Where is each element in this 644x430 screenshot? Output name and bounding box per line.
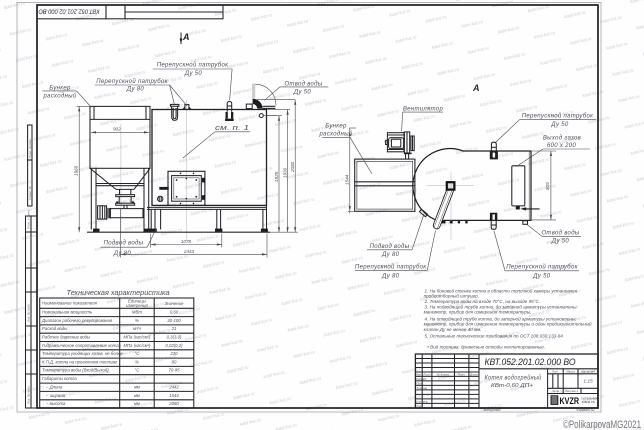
- svg-text:1078: 1078: [181, 239, 192, 244]
- svg-text:Отвод воды: Отвод воды: [284, 81, 322, 87]
- svg-text:Т.контр.: Т.контр.: [416, 386, 428, 390]
- svg-text:Перепускной патрубок: Перепускной патрубок: [522, 113, 594, 120]
- svg-text:%: %: [135, 359, 139, 364]
- svg-text:Котел водогрейный: Котел водогрейный: [485, 374, 542, 381]
- svg-text:Копировал: Копировал: [484, 408, 501, 412]
- svg-text:Отвод воды: Отвод воды: [541, 230, 579, 236]
- svg-text:1544: 1544: [169, 393, 179, 398]
- svg-text:0,60: 0,60: [170, 310, 179, 315]
- svg-text:%: %: [135, 318, 139, 323]
- svg-text:3. На подводящей трубе котла,: 3. На подводящей трубе котла, до запорно…: [425, 304, 579, 310]
- svg-text:– ширина: – ширина: [45, 393, 66, 398]
- svg-text:Ду 80: Ду 80: [113, 251, 131, 257]
- svg-text:Разраб.: Разраб.: [416, 377, 427, 381]
- svg-text:Техническая характеристика: Техническая характеристика: [67, 288, 170, 297]
- svg-text:0,02(0,2): 0,02(0,2): [165, 343, 183, 348]
- svg-text:пробоотборный штуцер.: пробоотборный штуцер.: [424, 293, 479, 299]
- svg-text:Лист: Лист: [422, 373, 431, 377]
- svg-text:2080: 2080: [290, 161, 295, 173]
- svg-text:Перепускной патрубок: Перепускной патрубок: [157, 62, 229, 69]
- svg-text:Листов 1: Листов 1: [564, 389, 578, 393]
- svg-text:К.П.Д. котла на проектном топл: К.П.Д. котла на проектном топливе: [42, 359, 118, 364]
- svg-text:расходный: расходный: [43, 92, 77, 99]
- svg-text:измерения: измерения: [126, 303, 148, 308]
- svg-text:А: А: [182, 32, 190, 42]
- svg-text:– высота: – высота: [45, 401, 66, 406]
- svg-text:– Длина: – Длина: [45, 384, 63, 389]
- svg-text:ЗАВОД Р.В.: ЗАВОД Р.В.: [582, 400, 596, 404]
- svg-text:см. п. 1: см. п. 1: [215, 125, 249, 132]
- svg-text:1. На боковой стенке котла в о: 1. На боковой стенке котла в области топ…: [425, 288, 578, 294]
- svg-text:Инв. № дубл.: Инв. № дубл.: [26, 303, 30, 322]
- svg-text:• Вид топлива: древесные отход: • Вид топлива: древесные отходы пеллетир…: [427, 345, 545, 350]
- svg-text:80: 80: [172, 359, 177, 364]
- svg-text:Формат А2: Формат А2: [576, 408, 595, 412]
- svg-text:4. На отводящей трубе котла, д: 4. На отводящей трубе котла, до запорной…: [425, 315, 578, 321]
- svg-text:Утв.: Утв.: [416, 404, 423, 408]
- svg-text:Инв. № подл.: Инв. № подл.: [26, 385, 30, 404]
- svg-text:Гидравлическое сопротивление к: Гидравлическое сопротивление котла: [42, 343, 122, 348]
- svg-text:1930: 1930: [282, 167, 287, 178]
- svg-text:расходный: расходный: [319, 131, 353, 138]
- svg-text:Выход газов: Выход газов: [543, 135, 581, 141]
- svg-text:Диапазон рабочего регулировани: Диапазон рабочего регулирования: [41, 318, 113, 323]
- svg-text:КВт-0,60 ДП+: КВт-0,60 ДП+: [491, 383, 534, 389]
- svg-text:манометр, прибор для измерения: манометр, прибор для измерения температу…: [424, 321, 592, 327]
- svg-text:КВТ.052.201.02.000 ВО: КВТ.052.201.02.000 ВО: [485, 357, 576, 368]
- svg-text:Пров.: Пров.: [416, 382, 424, 386]
- svg-text:Ду 50: Ду 50: [551, 239, 569, 245]
- svg-text:Ду 50: Ду 50: [184, 71, 202, 77]
- svg-text:Бункер: Бункер: [325, 124, 347, 130]
- svg-text:Ду 80: Ду 80: [126, 87, 144, 93]
- svg-text:м³/ч: м³/ч: [133, 326, 142, 331]
- svg-text:КВТ.052.201.02.000 ВО: КВТ.052.201.02.000 ВО: [38, 7, 100, 14]
- svg-text:мм: мм: [134, 401, 140, 406]
- svg-text:Перв. примен.: Перв. примен.: [28, 138, 32, 158]
- svg-text:809: 809: [545, 182, 550, 190]
- svg-text:Перепускной патрубок: Перепускной патрубок: [355, 263, 427, 270]
- svg-text:2080: 2080: [168, 401, 179, 406]
- svg-text:МПа (кгс/см²): МПа (кгс/см²): [123, 335, 151, 340]
- svg-text:Ду 80: Ду 80: [381, 252, 399, 258]
- svg-text:мм: мм: [134, 384, 140, 389]
- svg-text:Дата: Дата: [469, 373, 478, 377]
- svg-text:КОТЕЛЬНЫЙ: КОТЕЛЬНЫЙ: [582, 396, 598, 400]
- svg-text:Справ. №: Справ. №: [28, 186, 32, 200]
- svg-text:А: А: [472, 83, 480, 93]
- svg-text:Наименование показателя: Наименование показателя: [42, 301, 98, 306]
- svg-text:2443: 2443: [183, 249, 195, 254]
- svg-text:600 х 200: 600 х 200: [547, 143, 576, 149]
- svg-text:230: 230: [169, 351, 178, 356]
- svg-text:Масштаб: Масштаб: [581, 369, 595, 373]
- svg-text:Подп. и дата: Подп. и дата: [26, 210, 30, 229]
- svg-text:Н.контр.: Н.контр.: [416, 400, 428, 404]
- svg-text:МВт: МВт: [132, 310, 142, 315]
- svg-text:1:15: 1:15: [583, 379, 593, 385]
- svg-text:№ докум.: № докум.: [437, 373, 450, 377]
- svg-text:Ду 50: Ду 50: [550, 122, 568, 128]
- svg-text:манометр, прибор для измерения: манометр, прибор для измерения температу…: [424, 310, 532, 315]
- svg-text:Значение: Значение: [165, 301, 184, 306]
- svg-text:30-100: 30-100: [167, 318, 181, 323]
- svg-text:Подп.: Подп.: [458, 373, 466, 377]
- svg-text:1969: 1969: [74, 165, 79, 176]
- svg-text:Лит.: Лит.: [551, 369, 559, 373]
- svg-text:Температура уходящих газов, не: Температура уходящих газов, не более: [42, 351, 123, 356]
- svg-text:902: 902: [113, 127, 121, 132]
- svg-text:0,3(3,0): 0,3(3,0): [167, 335, 182, 340]
- svg-text:Перепускной патрубок: Перепускной патрубок: [96, 78, 168, 85]
- svg-text:Номинальная мощность: Номинальная мощность: [42, 310, 93, 315]
- svg-text:мм: мм: [134, 393, 140, 398]
- svg-text:©PolikarpovaMG2021: ©PolikarpovaMG2021: [563, 419, 641, 430]
- svg-text:Подвод воды: Подвод воды: [104, 240, 144, 246]
- svg-text:МПа (кгс/см²): МПа (кгс/см²): [123, 343, 151, 348]
- svg-text:Расход воды: Расход воды: [42, 326, 68, 331]
- svg-text:Ду 50: Ду 50: [293, 90, 311, 96]
- svg-text:Рабочее давление воды: Рабочее давление воды: [42, 335, 91, 340]
- svg-text:Ду 80: Ду 80: [381, 274, 399, 280]
- svg-text:Изм.: Изм.: [416, 373, 422, 377]
- svg-text:5. Остальные технические требо: 5. Остальные технические требования по О…: [425, 333, 565, 338]
- svg-text:Перепускной патрубок: Перепускной патрубок: [506, 264, 578, 271]
- svg-text:1925: 1925: [274, 171, 279, 182]
- svg-text:Масса: Масса: [566, 369, 575, 373]
- svg-text:Ду 50: Ду 50: [532, 274, 550, 280]
- svg-text:1544: 1544: [344, 174, 349, 185]
- svg-text:70-95: 70-95: [169, 368, 181, 373]
- svg-text:2. Температура воды на входе 7: 2. Температура воды на входе 70°С, на вы…: [424, 299, 541, 304]
- svg-text:Температура воды (Вход/Выход): Температура воды (Вход/Выход): [42, 368, 109, 373]
- svg-text:KVZR: KVZR: [560, 396, 580, 406]
- svg-text:клапан Ду не менее 40 мм.: клапан Ду не менее 40 мм.: [424, 327, 482, 332]
- svg-text:Подвод воды: Подвод воды: [370, 244, 410, 250]
- svg-text:2442: 2442: [168, 384, 179, 389]
- svg-text:21: 21: [171, 326, 177, 331]
- svg-text:Габариты котла: Габариты котла: [42, 376, 77, 381]
- svg-text:Лист: Лист: [551, 389, 560, 393]
